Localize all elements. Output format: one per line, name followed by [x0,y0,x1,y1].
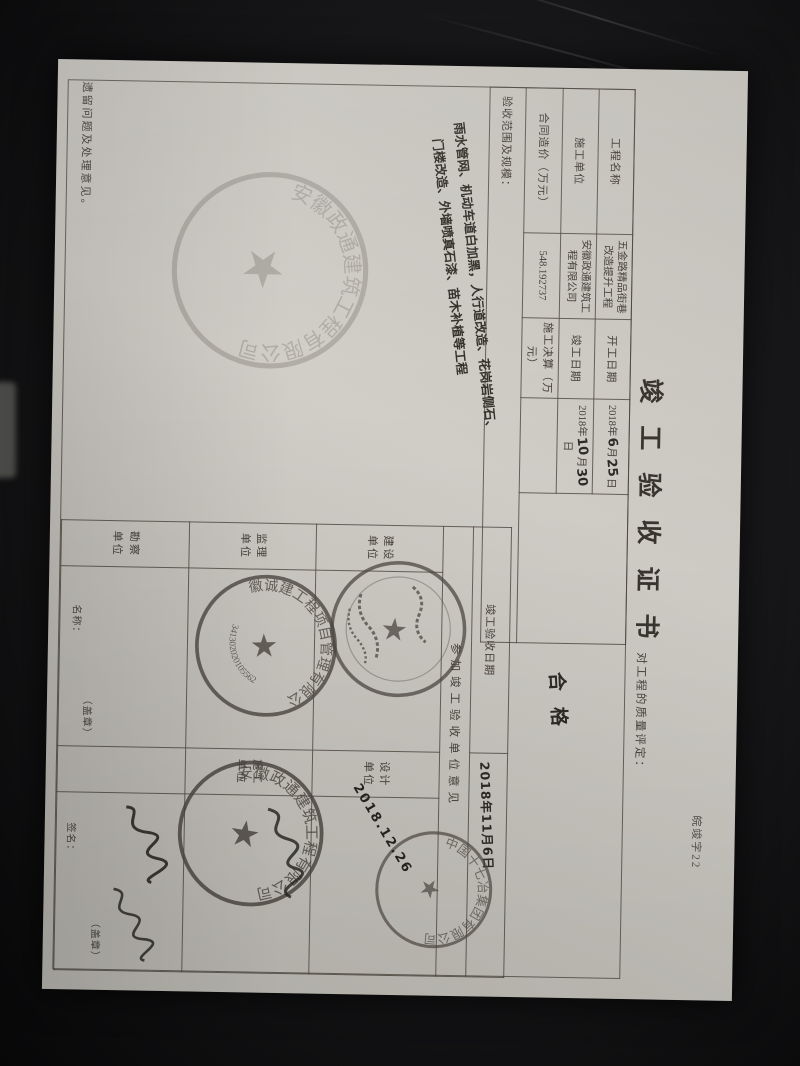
contract-price-value: 548.192737 [522,233,560,319]
photo-background: 皖竣字22 竣工验收证书 对工程的质量评定： 合格 工程名称 五金路精品街巷改造… [0,0,800,1066]
day-unit: 日 [604,478,615,489]
remaining-issues-label: 遗留问题及处理意见。 [78,81,96,211]
document-paper: 皖竣字22 竣工验收证书 对工程的质量评定： 合格 工程名称 五金路精品街巷改造… [42,59,748,1001]
star-icon: ★ [414,875,445,902]
empty-cell [517,493,629,645]
supervision-unit-cell: 安徽诚建工程项目管理有限公司 341302020105562 ★ [186,568,316,750]
signature-cell: 签名： （盖章） [54,792,185,972]
start-month-handwritten: 6 [603,437,620,448]
name-label: 名称： [70,604,86,637]
survey-unit-cell: 名称： （盖章） [58,566,189,748]
star-icon: ★ [243,627,286,666]
quality-assessment-label: 对工程的质量评定： [632,652,650,774]
settlement-label: 施工决算（万元） [521,318,559,399]
form-code: 皖竣字22 [688,815,705,869]
unit-label-design: 设计单位 [312,750,440,798]
light-streak [466,0,725,57]
star-icon: ★ [229,237,298,299]
contractor-value: 安徽政通建筑工程有限公司 [559,233,596,319]
contractor-label: 施工单位 [561,88,600,234]
contractor-unit-cell: 安徽政通建筑工程有限公司 ★ [182,794,312,974]
start-year: 2018年 [605,405,617,437]
start-day-handwritten: 25 [602,458,620,478]
finish-date-value: 2018年10月30日 [556,398,594,494]
star-icon: ★ [375,613,414,648]
contract-price-label: 合同造价（万元） [524,88,564,234]
paper-edge-highlight [0,382,16,478]
start-date-value: 2018年6月25日 [592,399,630,495]
table-row: 勘察单位 名称： （盖章） 签名： （盖章） [54,520,190,972]
month-unit: 月 [605,447,616,458]
table-row: 监理单位 安徽诚建工程项目管理有限公司 341302020105562 ★ 施 [182,522,317,974]
day-unit: 日 [561,441,572,452]
table-row: 建设单位 ★ 设计单位 [309,524,444,976]
unit-label-survey: 勘察单位 [61,520,190,568]
seal-label: （盖章） [80,695,96,739]
project-name-label: 工程名称 [597,89,636,235]
project-name-value: 五金路精品街巷改造提升工程 [595,234,632,320]
settlement-value [519,398,558,494]
start-date-label: 开工日期 [594,319,631,400]
finish-date-label: 竣工日期 [558,318,595,399]
month-unit: 月 [575,457,586,468]
acceptance-table: 竣工验收日期 2018年11月6日 参加竣工验收单位意见 建设单位 ★ [53,519,512,978]
acceptance-date-label: 竣工验收日期 [470,527,512,754]
finish-year: 2018年 [576,405,588,437]
finish-day-handwritten: 30 [572,467,590,487]
finish-month-handwritten: 10 [573,437,591,457]
sign-label: 签名： [64,822,80,855]
